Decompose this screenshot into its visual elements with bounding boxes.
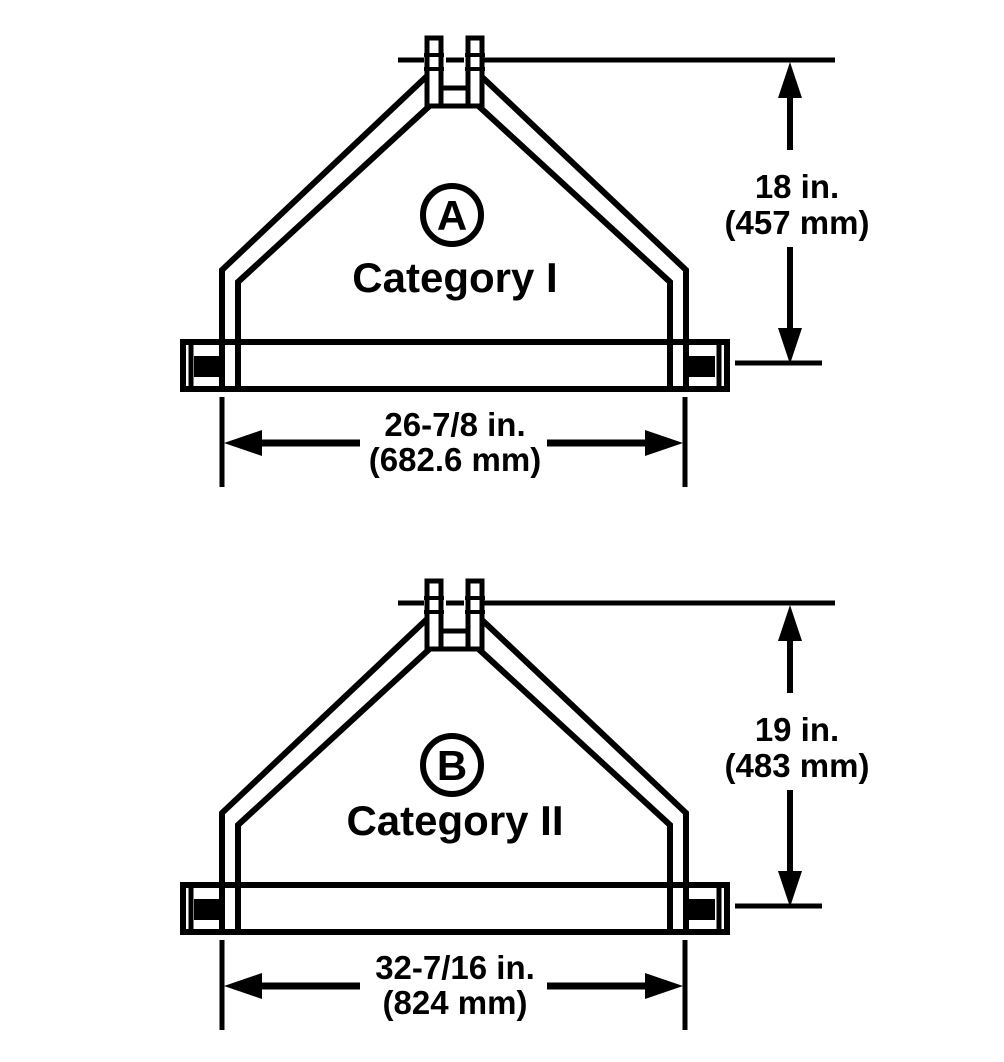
width-dim-imperial-2: 32-7/16 in. [375, 949, 535, 986]
height-dim-imperial-2: 19 in. [755, 711, 839, 748]
badge-letter-b: B [437, 742, 467, 789]
height-dim-metric-1: (457 mm) [725, 204, 870, 241]
height-dim-imperial-1: 18 in. [755, 168, 839, 205]
height-dim-metric-2: (483 mm) [725, 747, 870, 784]
diagram-category-2: B Category II 19 in. (483 mm) 32-7/16 in… [183, 581, 869, 1030]
category-1-label: Category I [352, 254, 557, 301]
width-dim-metric-1: (682.6 mm) [369, 441, 541, 478]
hitch-diagram-svg: A Category I 18 in. (457 mm) 26-7/8 in. … [0, 0, 1004, 1062]
figure-canvas: A Category I 18 in. (457 mm) 26-7/8 in. … [0, 0, 1004, 1062]
badge-letter-a: A [437, 192, 467, 239]
diagram-category-1: A Category I 18 in. (457 mm) 26-7/8 in. … [183, 38, 869, 487]
category-2-label: Category II [346, 797, 563, 844]
width-dim-metric-2: (824 mm) [383, 984, 528, 1021]
width-dim-imperial-1: 26-7/8 in. [384, 406, 525, 443]
